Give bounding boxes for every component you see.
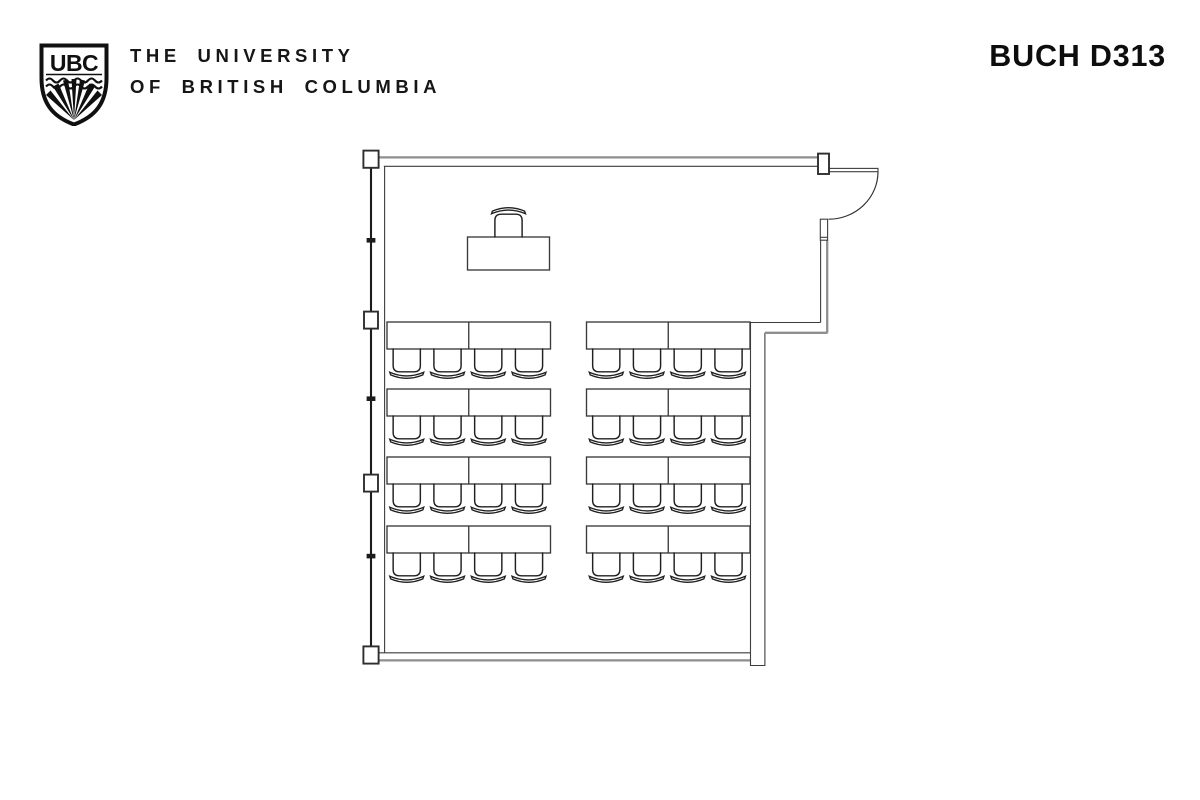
student-chair-back — [671, 372, 705, 378]
student-chair — [715, 553, 742, 576]
window-mullion-tick — [367, 238, 376, 243]
student-chair — [475, 553, 502, 576]
student-chair-back — [431, 439, 465, 445]
logo-monogram: UBC — [50, 50, 98, 76]
door-leaf — [829, 168, 878, 171]
window-post — [363, 151, 378, 168]
student-chair — [393, 416, 420, 439]
student-chair-back — [512, 372, 546, 378]
student-chair — [393, 349, 420, 372]
room-label: BUCH D313 — [989, 39, 1166, 74]
student-chair — [393, 553, 420, 576]
page: UBC THE UNIVERSITY OF BRITISH COLUMBIA B… — [0, 0, 1200, 800]
student-chair — [674, 484, 701, 507]
student-chair-back — [431, 507, 465, 513]
student-chair-back — [630, 507, 664, 513]
furniture — [387, 208, 750, 583]
student-chair-back — [390, 507, 424, 513]
student-chair-back — [712, 439, 746, 445]
student-chair-back — [589, 507, 623, 513]
student-chair — [715, 416, 742, 439]
student-chair — [475, 349, 502, 372]
student-chair-back — [512, 439, 546, 445]
student-chair-back — [630, 439, 664, 445]
student-chair-back — [390, 372, 424, 378]
wordmark-line1: THE UNIVERSITY — [130, 40, 441, 71]
student-chair — [633, 553, 660, 576]
student-chair-back — [630, 372, 664, 378]
student-chair-back — [512, 576, 546, 582]
student-chair — [434, 416, 461, 439]
student-chair — [475, 416, 502, 439]
instructor-chair — [495, 214, 522, 237]
window-post — [364, 475, 378, 492]
student-chair — [715, 484, 742, 507]
student-chair — [674, 416, 701, 439]
student-chair — [633, 484, 660, 507]
university-wordmark: THE UNIVERSITY OF BRITISH COLUMBIA — [130, 40, 441, 102]
student-chair-back — [671, 576, 705, 582]
student-chair-back — [431, 372, 465, 378]
student-chair — [633, 416, 660, 439]
window-post — [363, 646, 378, 663]
wordmark-line2: OF BRITISH COLUMBIA — [130, 71, 441, 102]
student-chair-back — [589, 439, 623, 445]
student-chair — [593, 349, 620, 372]
student-chair-back — [589, 576, 623, 582]
student-chair-back — [431, 576, 465, 582]
student-chair — [593, 416, 620, 439]
student-chair — [434, 349, 461, 372]
student-chair — [515, 484, 542, 507]
door-swing-arc — [829, 172, 878, 220]
right-wall-lower — [751, 323, 821, 666]
student-chair — [434, 553, 461, 576]
student-chair-back — [630, 576, 664, 582]
student-chair-back — [390, 576, 424, 582]
student-chair-back — [589, 372, 623, 378]
student-chair-back — [471, 507, 505, 513]
door-post — [818, 154, 829, 174]
window-mullion-tick — [367, 396, 376, 401]
instructor-table — [468, 237, 550, 270]
student-chair-back — [471, 576, 505, 582]
floor-plan — [346, 138, 896, 690]
student-chair — [475, 484, 502, 507]
student-chair — [674, 553, 701, 576]
student-chair — [515, 349, 542, 372]
student-chair — [434, 484, 461, 507]
student-chair — [393, 484, 420, 507]
student-chair — [633, 349, 660, 372]
student-chair-back — [512, 507, 546, 513]
student-chair — [715, 349, 742, 372]
student-chair-back — [671, 507, 705, 513]
student-chair — [593, 553, 620, 576]
student-chair-back — [712, 576, 746, 582]
student-chair — [515, 553, 542, 576]
student-chair-back — [671, 439, 705, 445]
window-mullion-tick — [367, 554, 376, 559]
window-post — [364, 312, 378, 329]
student-chair — [674, 349, 701, 372]
student-chair — [593, 484, 620, 507]
instructor-chair-back — [492, 208, 526, 214]
student-chair-back — [471, 372, 505, 378]
student-chair — [515, 416, 542, 439]
student-chair-back — [471, 439, 505, 445]
ubc-logo: UBC — [38, 42, 110, 126]
student-chair-back — [712, 507, 746, 513]
student-chair-back — [712, 372, 746, 378]
student-chair-back — [390, 439, 424, 445]
